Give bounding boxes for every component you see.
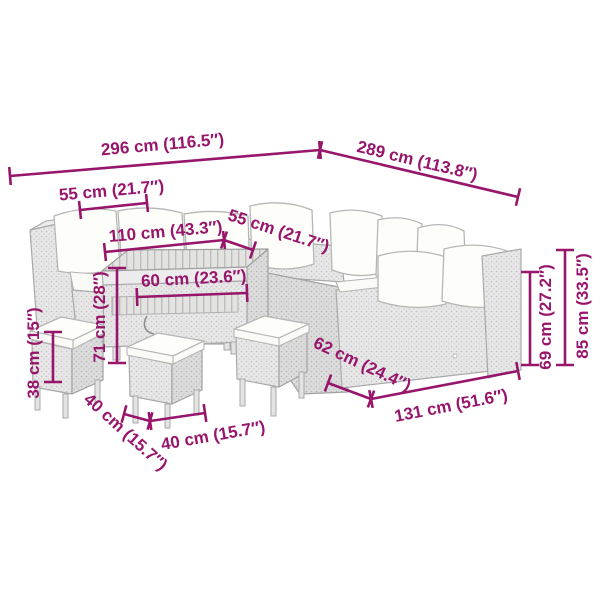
dim-label-table-height: 71 cm (28″) xyxy=(90,271,109,362)
dimension-total-height: 85 cm (33.5″) xyxy=(556,250,592,365)
diagram-canvas: 296 cm (116.5″) 289 cm (113.8″) 55 cm (2… xyxy=(0,0,600,600)
dim-label-stool-depth: 40 cm (15.7″) xyxy=(80,390,171,475)
dim-label-total-width: 296 cm (116.5″) xyxy=(100,130,225,160)
dim-label-backrest-height: 69 cm (27.2″) xyxy=(536,264,555,369)
dimension-stool-depth: 40 cm (15.7″) xyxy=(80,390,171,475)
furniture-dimension-diagram: 296 cm (116.5″) 289 cm (113.8″) 55 cm (2… xyxy=(0,0,600,600)
dim-label-total-depth: 289 cm (113.8″) xyxy=(355,137,479,184)
dimension-backrest-height: 69 cm (27.2″) xyxy=(521,264,555,369)
dimension-tick xyxy=(9,167,11,185)
dimension-tick xyxy=(104,243,106,261)
dim-label-stool-height: 38 cm (15″) xyxy=(24,307,43,398)
table-shelf xyxy=(112,294,238,315)
stool-right xyxy=(234,316,309,416)
dimension-tick xyxy=(137,288,138,306)
screw-detail xyxy=(453,354,457,358)
dimension-total-depth: 289 cm (113.8″) xyxy=(318,137,520,206)
right-armrest xyxy=(482,249,521,378)
dimension-tick xyxy=(204,404,207,422)
cushion xyxy=(378,251,446,307)
dimension-total-width: 296 cm (116.5″) xyxy=(9,130,321,185)
dim-label-left-seat-depth: 55 cm (21.7″) xyxy=(58,176,165,204)
dim-label-total-height: 85 cm (33.5″) xyxy=(573,253,592,358)
dimension-tick xyxy=(247,284,248,302)
dim-label-stool-width: 40 cm (15.7″) xyxy=(159,417,266,454)
